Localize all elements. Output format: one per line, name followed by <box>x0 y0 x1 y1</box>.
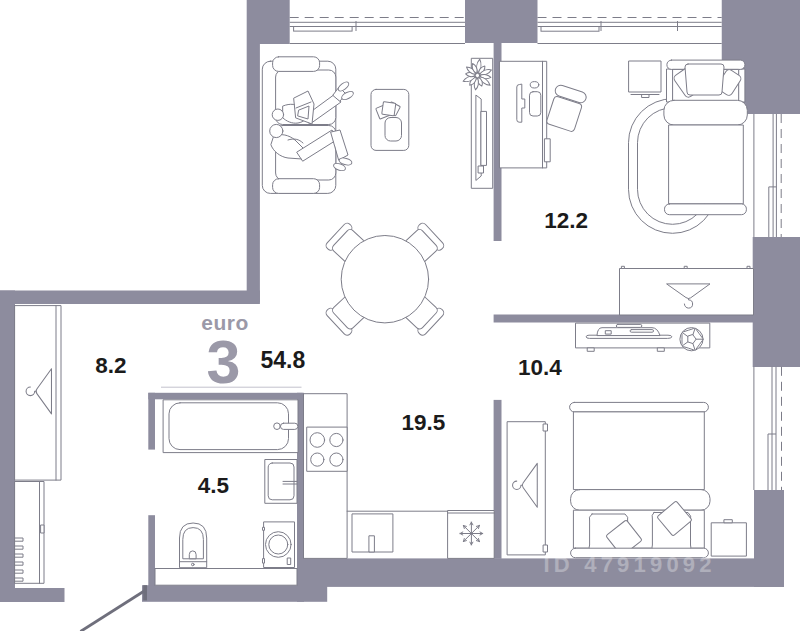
svg-text:12.2: 12.2 <box>544 208 588 233</box>
svg-text:ID 47919092: ID 47919092 <box>544 552 716 577</box>
svg-text:10.4: 10.4 <box>518 355 562 380</box>
svg-text:8.2: 8.2 <box>95 353 126 378</box>
svg-text:4.5: 4.5 <box>198 473 229 498</box>
svg-text:54.8: 54.8 <box>261 347 306 373</box>
svg-text:3: 3 <box>206 328 240 396</box>
svg-text:19.5: 19.5 <box>402 410 446 435</box>
